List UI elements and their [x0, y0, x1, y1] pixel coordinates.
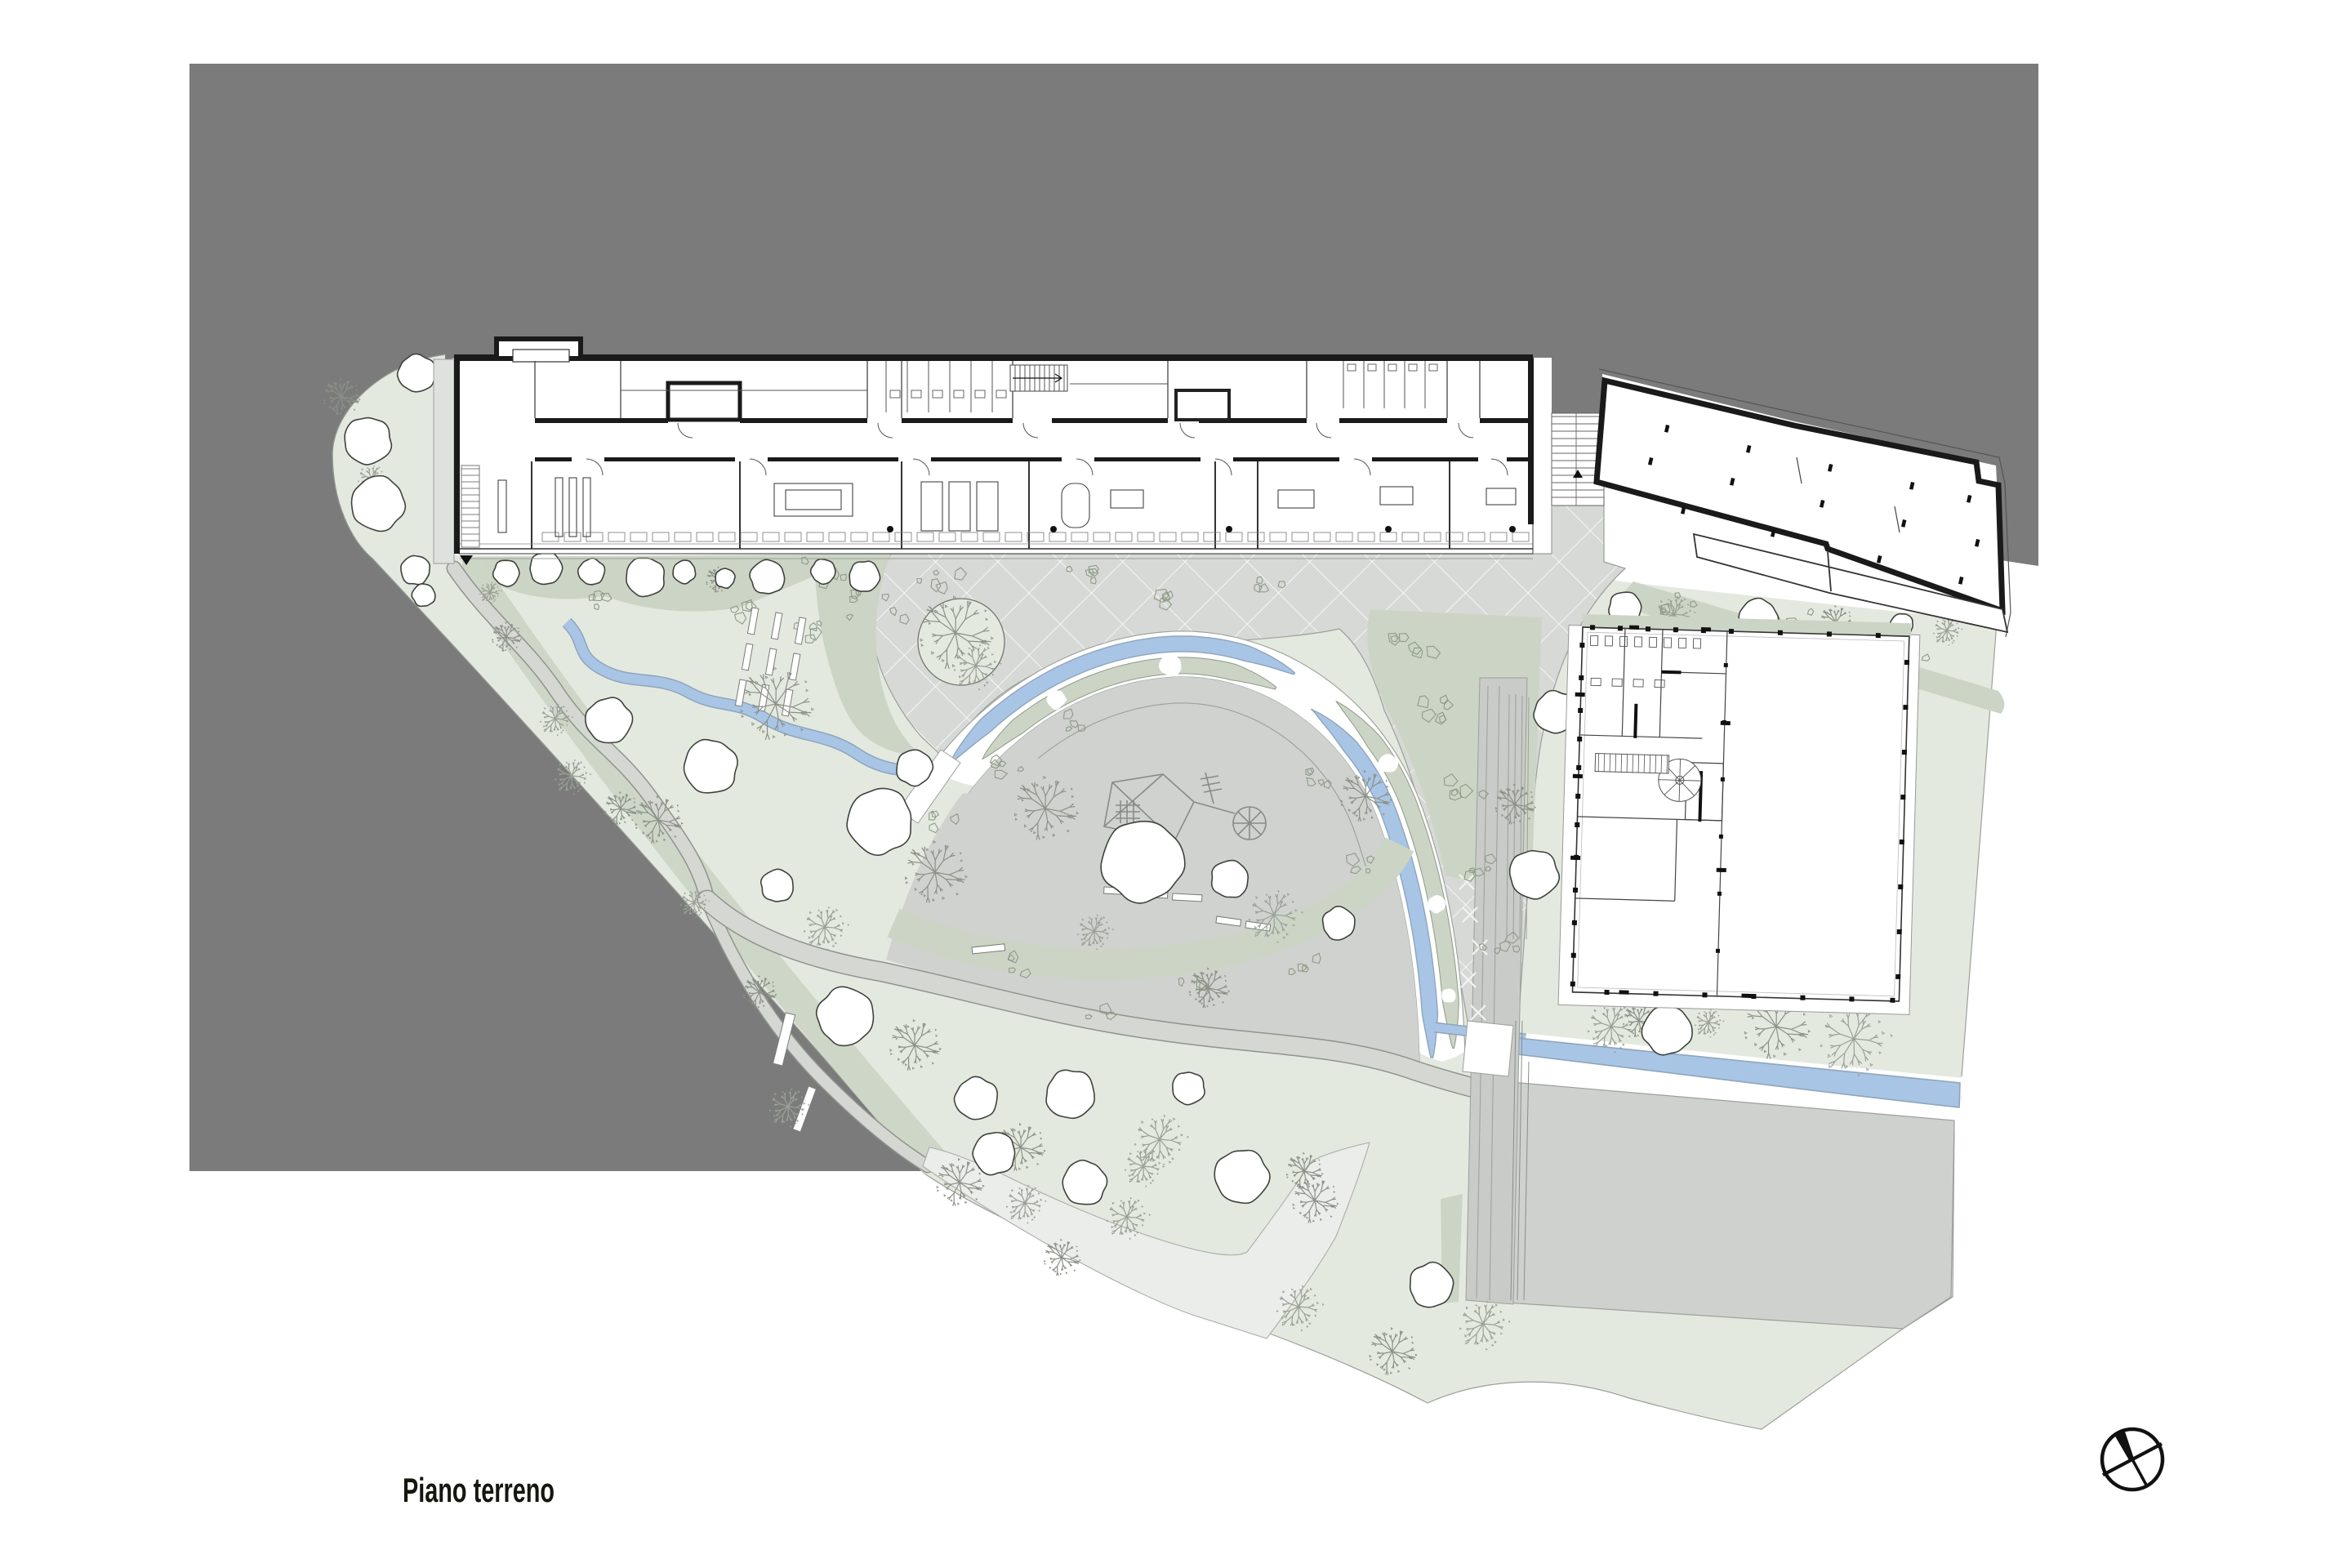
- svg-text:Piano terreno: Piano terreno: [403, 1471, 555, 1509]
